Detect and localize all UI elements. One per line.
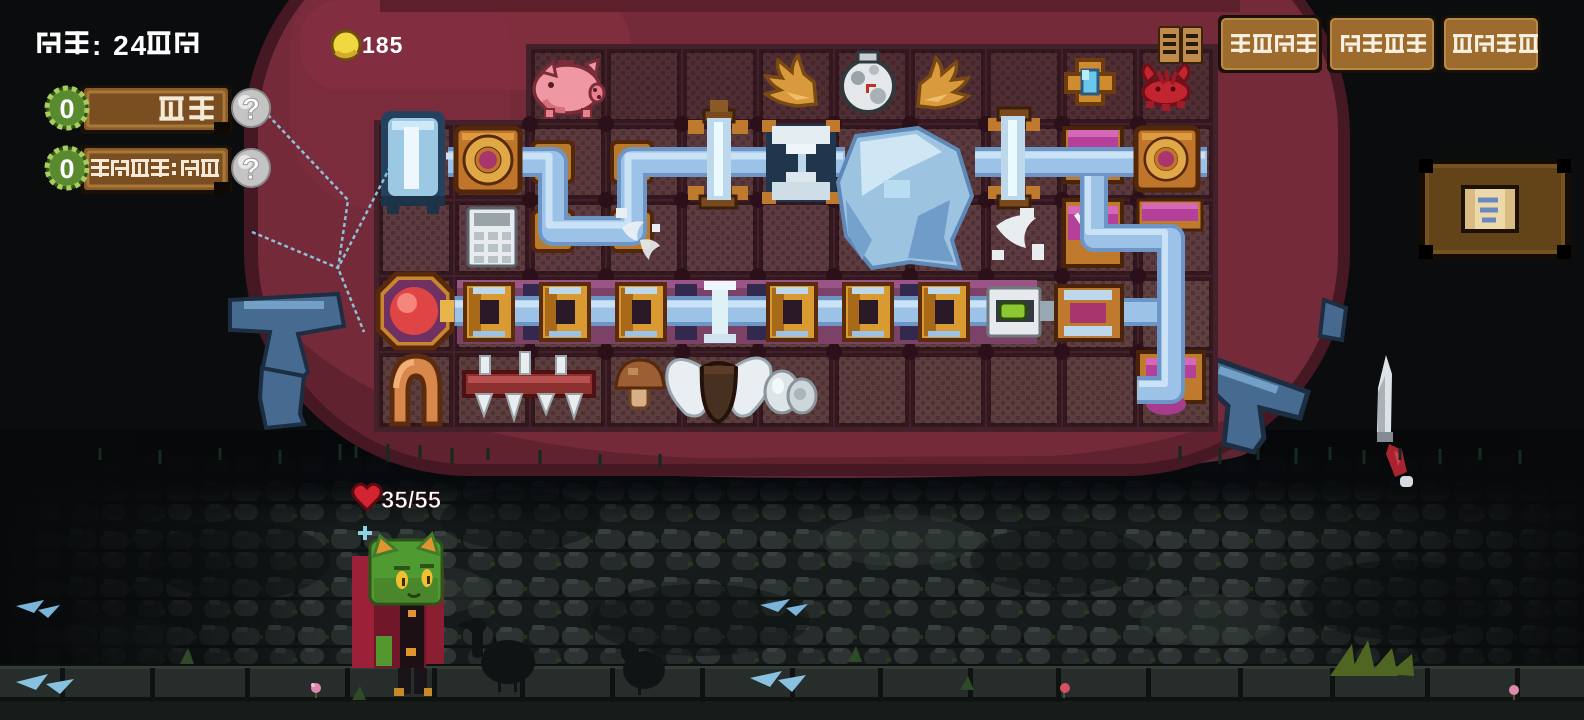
svg-text:0: 0 <box>59 154 74 184</box>
svg-text:?: ? <box>242 153 260 186</box>
svg-text:: 24: : 24 <box>92 30 148 61</box>
svg-text:185: 185 <box>362 32 403 58</box>
svg-text:?: ? <box>242 93 260 126</box>
svg-text:0: 0 <box>59 94 74 124</box>
svg-text:35/55: 35/55 <box>381 487 441 514</box>
